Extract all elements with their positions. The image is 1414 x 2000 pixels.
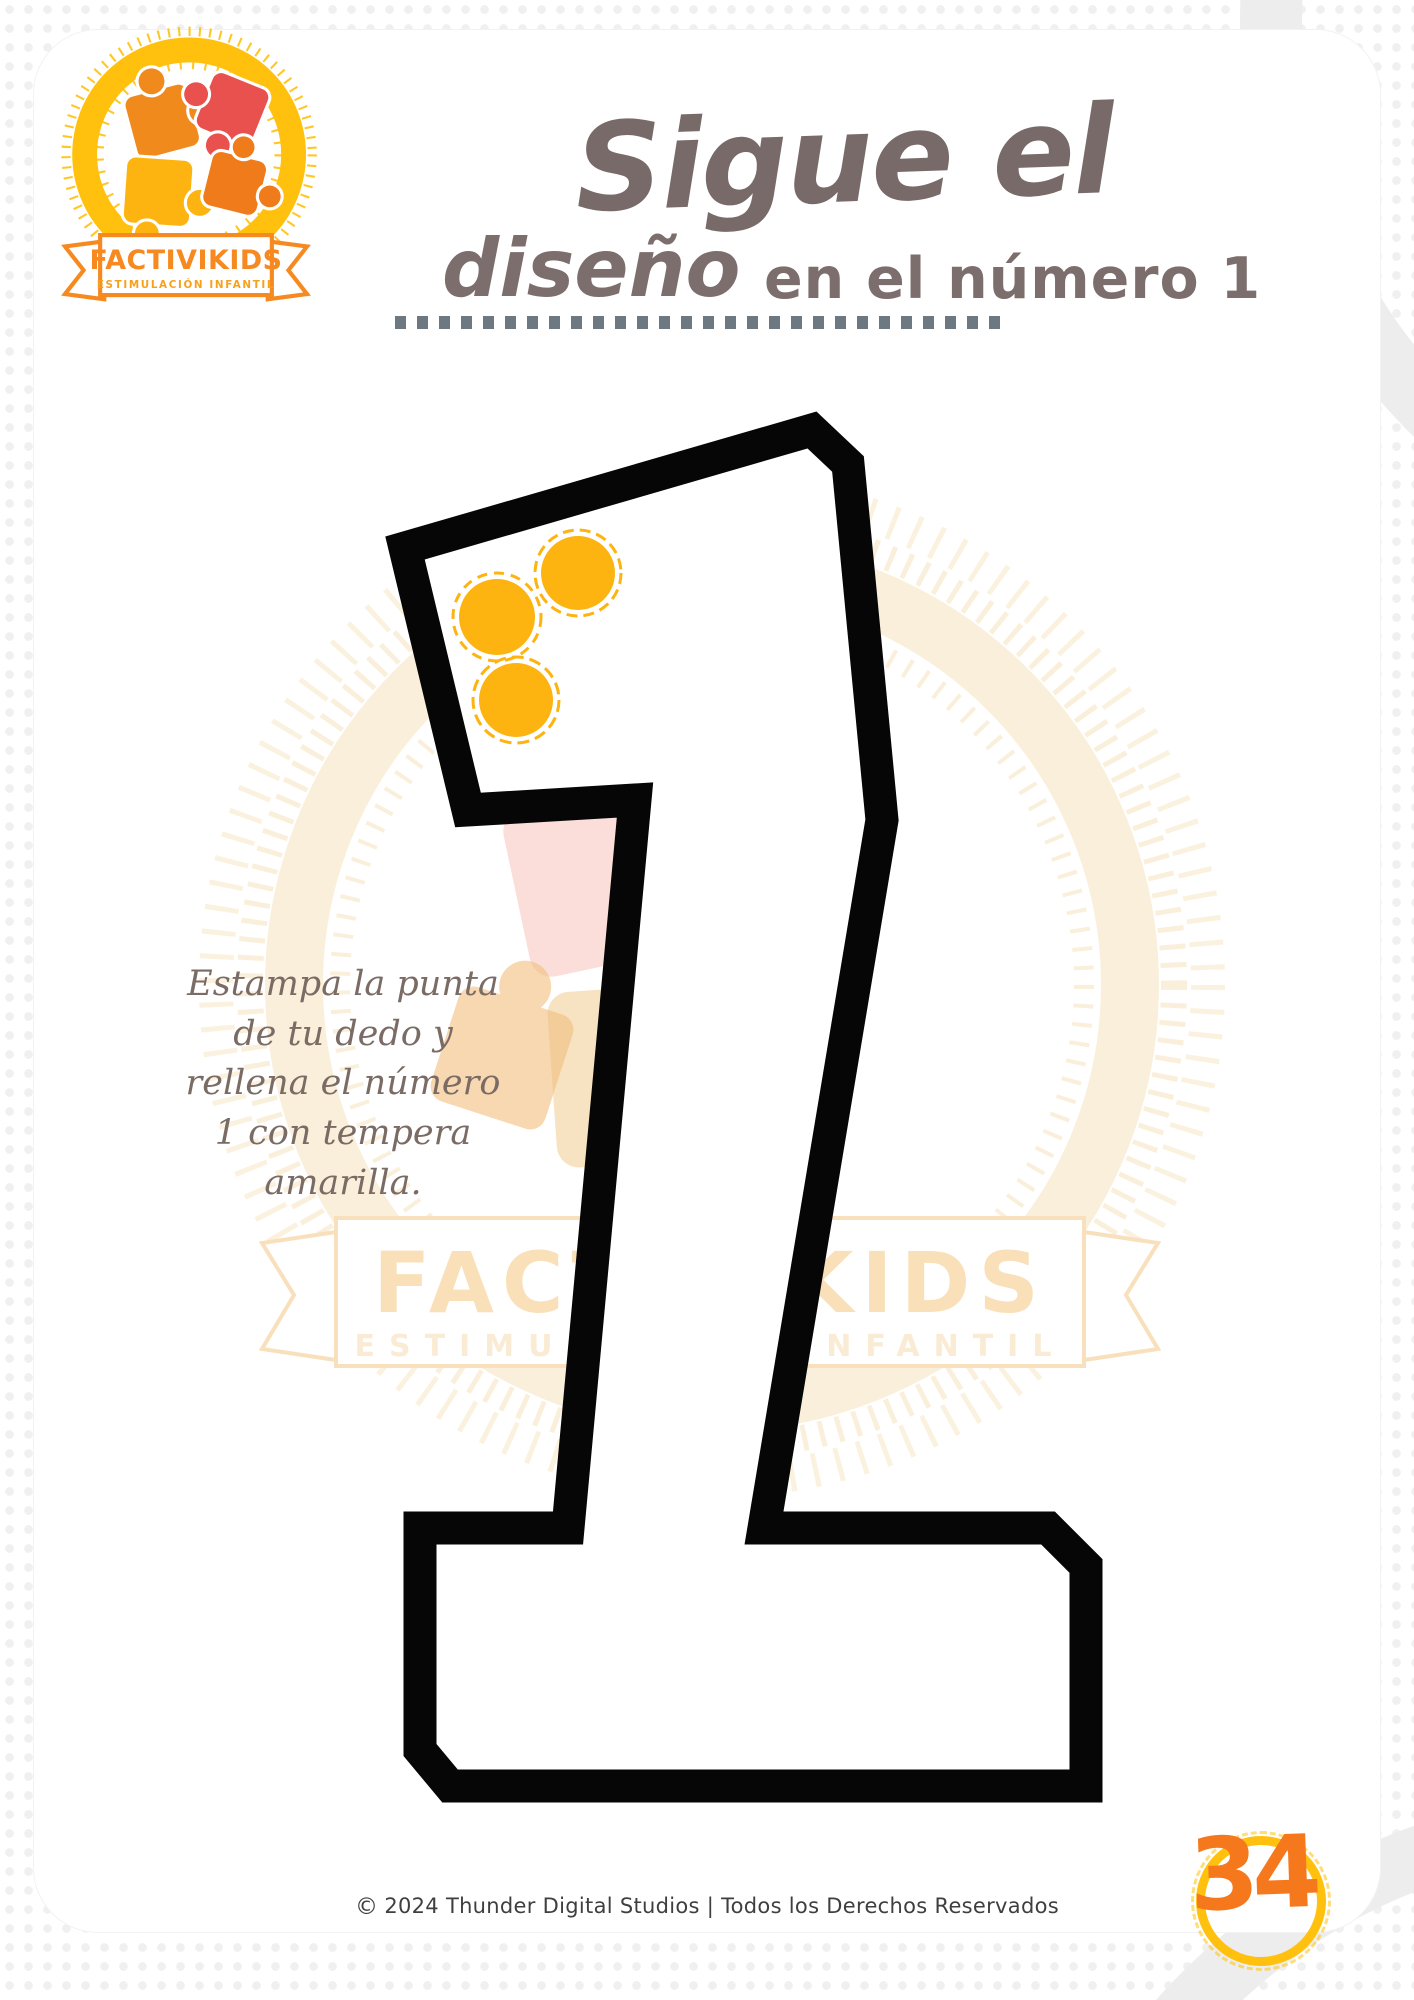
page-title-sub-word: diseño: [442, 222, 740, 315]
page-title-sub-rest: en el número 1: [764, 246, 1261, 312]
page-title: Sigue el: [573, 78, 1138, 239]
copyright-icon: ©: [355, 1894, 378, 1920]
instruction-line: amarilla.: [108, 1159, 578, 1209]
instruction-line: Estampa la punta: [108, 960, 578, 1010]
instruction-line: de tu dedo y: [108, 1010, 578, 1060]
instruction-line: rellena el número: [108, 1059, 578, 1109]
page-number: 34: [1180, 1822, 1323, 1927]
dotted-separator: [395, 316, 1007, 329]
instruction-text: Estampa la punta de tu dedo y rellena el…: [108, 960, 578, 1208]
instruction-line: 1 con tempera: [108, 1109, 578, 1159]
footer-text: 2024 Thunder Digital Studios | Todos los…: [384, 1894, 1059, 1918]
